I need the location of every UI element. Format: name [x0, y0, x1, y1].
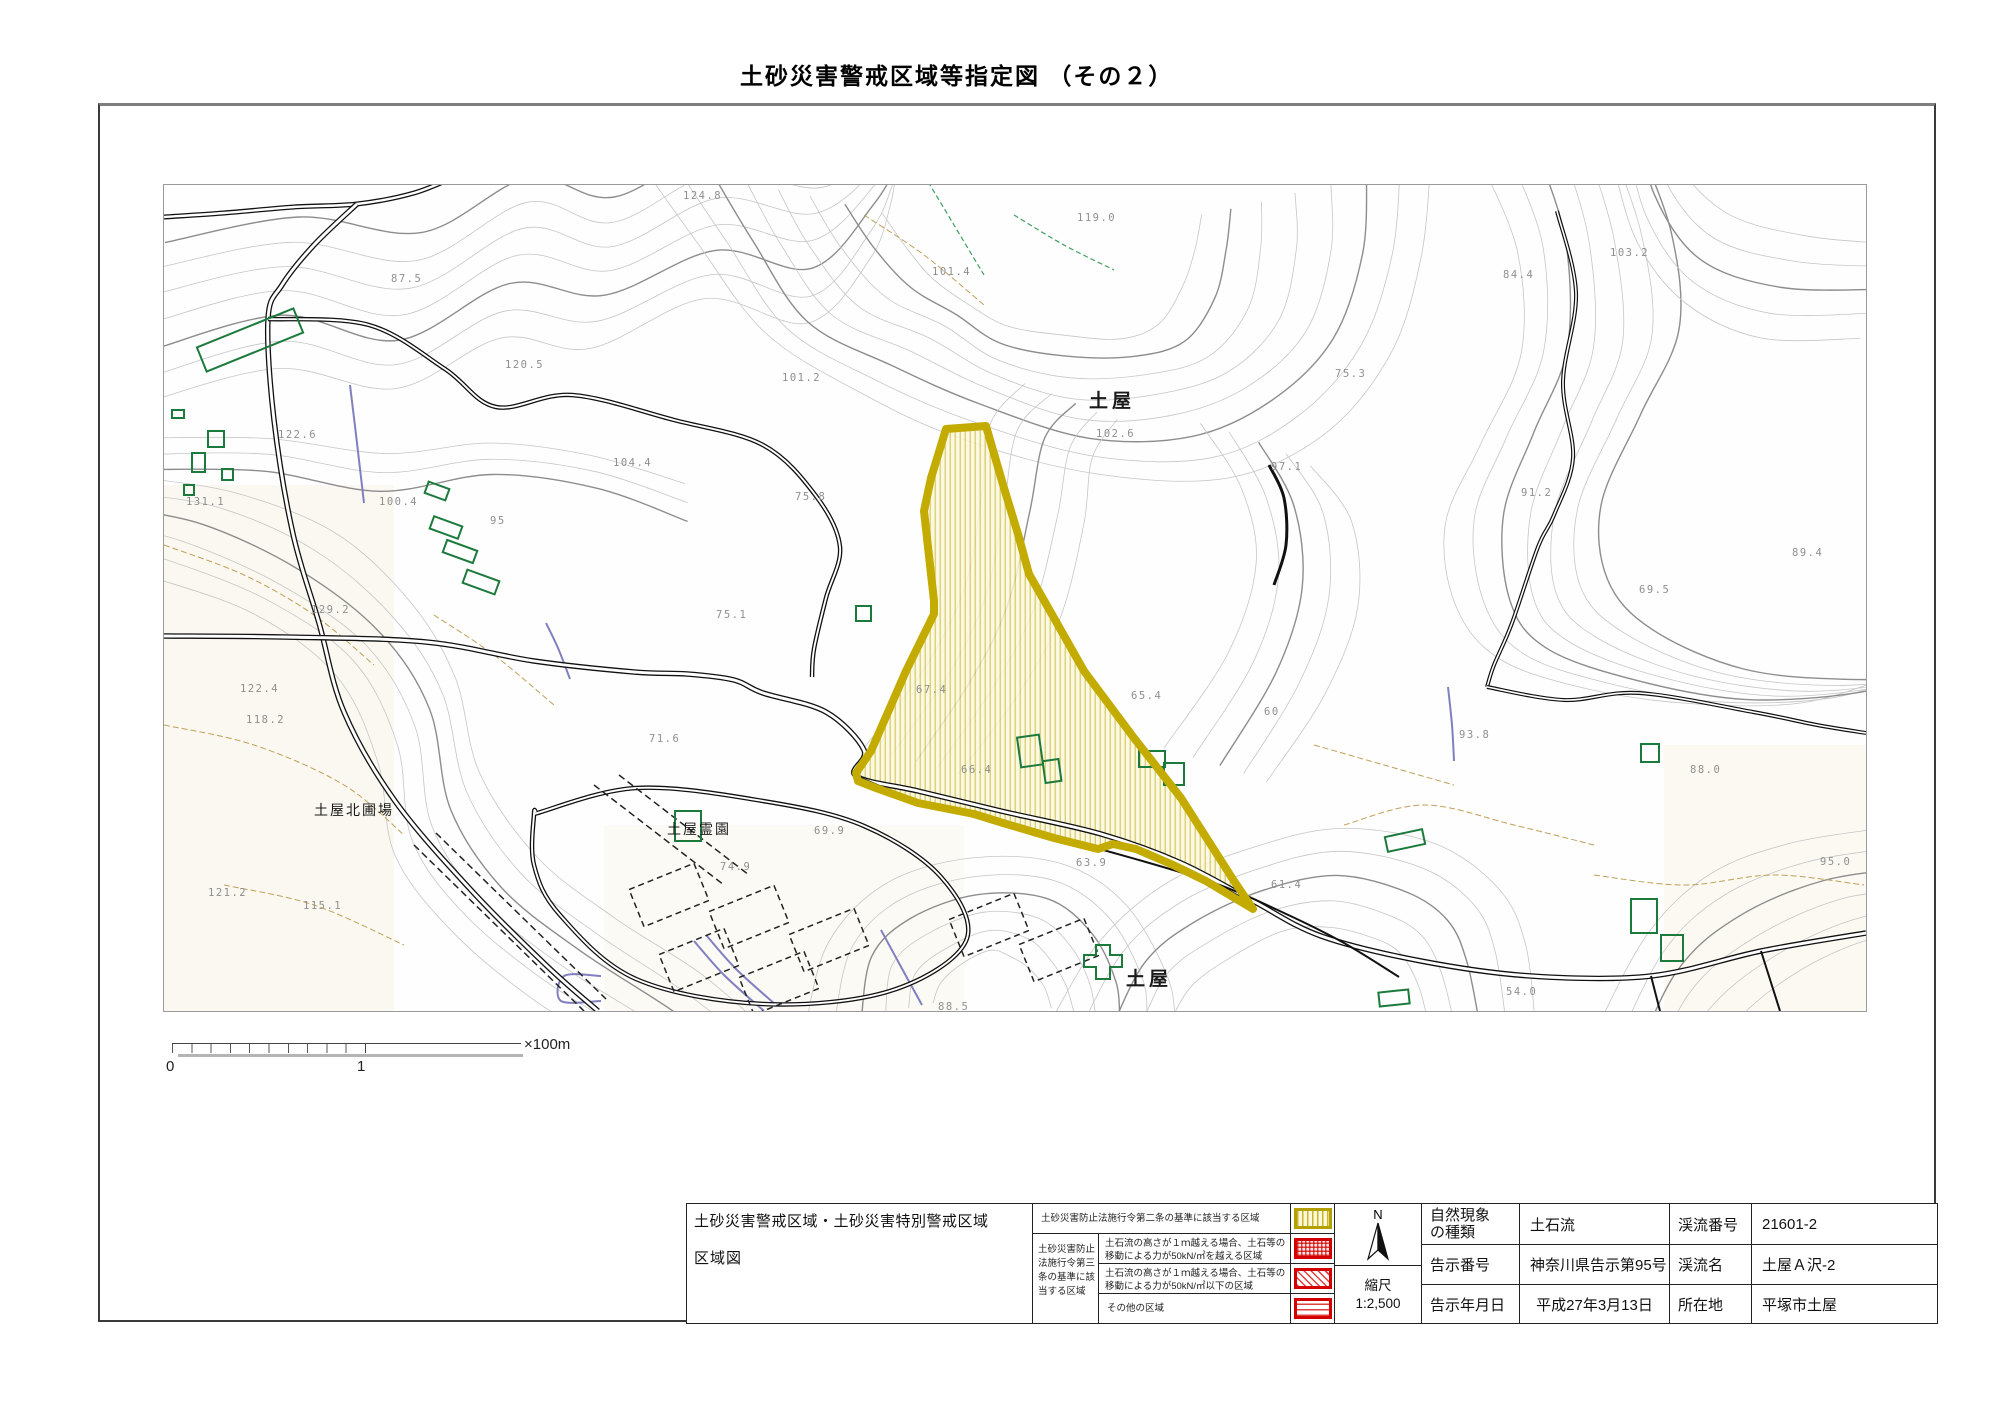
page: 土砂災害警戒区域等指定図 （その２） 124.8119.0101.484.410…: [0, 0, 2000, 1414]
legend-row2-line2: 移動による力が50kN/㎡を越える区域: [1105, 1250, 1290, 1263]
elevation-label: 66.4: [961, 764, 992, 776]
area-label: 土屋: [1089, 390, 1135, 412]
elevation-label: 120.5: [505, 359, 544, 371]
map-title-line1: 土砂災害警戒区域・土砂災害特別警戒区域: [694, 1210, 989, 1231]
legend-group-line: 当する区域: [1038, 1285, 1098, 1299]
legend-row2-line1: 土石流の高さが１ｍ越える場合、土石等の: [1105, 1237, 1290, 1250]
location-label-cell: 所在地: [1669, 1284, 1752, 1324]
scale-cell: 縮尺 1:2,500: [1334, 1265, 1422, 1324]
elevation-label: 75.3: [1335, 368, 1366, 380]
elevation-label: 93.8: [1459, 729, 1490, 741]
elevation-label: 119.0: [1077, 212, 1116, 224]
elevation-label: 69.9: [814, 825, 845, 837]
area-label: 土屋北圃場: [314, 802, 394, 818]
elevation-label: 121.2: [208, 887, 247, 899]
nature-label-cell: 自然現象 の種類: [1421, 1203, 1520, 1245]
notice-no-label-cell: 告示番号: [1421, 1244, 1520, 1285]
north-arrow-cell: N: [1334, 1203, 1422, 1266]
elevation-label: 102.6: [1096, 428, 1135, 440]
legend-row3-text: 土石流の高さが１ｍ越える場合、土石等の 移動による力が50kN/㎡以下の区域: [1098, 1263, 1291, 1294]
elevation-label: 54.0: [1506, 986, 1537, 998]
elevation-label: 129.2: [311, 604, 350, 616]
nature-label-line2: の種類: [1430, 1224, 1490, 1241]
elevation-label: 89.4: [1792, 547, 1823, 559]
scale-bar-ticks: [172, 1043, 366, 1053]
legend-group-line: 法施行令第三: [1038, 1257, 1098, 1271]
scale-bar-zero: 0: [166, 1058, 174, 1075]
map-svg: 124.8119.0101.484.4103.287.5101.275.3120…: [164, 185, 1866, 1011]
info-table: 土砂災害警戒区域・土砂災害特別警戒区域 区域図 土砂災害防止法施行令第二条の基準…: [686, 1203, 1938, 1324]
scale-bar-shadow: [178, 1054, 523, 1057]
elevation-label: 122.4: [240, 683, 279, 695]
north-arrow-icon: N: [1360, 1207, 1396, 1263]
special-zone-swatch-1: [1294, 1238, 1332, 1259]
legend-row3-line1: 土石流の高さが１ｍ越える場合、土石等の: [1105, 1267, 1290, 1280]
elevation-label: 69.5: [1639, 584, 1670, 596]
legend-group-label: 土砂災害防止 法施行令第三 条の基準に該 当する区域: [1032, 1233, 1099, 1324]
scale-bar-unit: ×100m: [524, 1036, 570, 1053]
elevation-label: 60: [1264, 706, 1280, 718]
legend-swatch-special1-cell: [1290, 1233, 1335, 1264]
legend-group-line: 土砂災害防止: [1038, 1243, 1098, 1257]
warning-zone-swatch: [1294, 1208, 1332, 1229]
special-zone-swatch-2: [1294, 1268, 1332, 1289]
scale-label: 縮尺: [1365, 1277, 1392, 1295]
elevation-label: 104.4: [613, 457, 652, 469]
elevation-label: 124.8: [683, 190, 722, 202]
nature-value-cell: 土石流: [1519, 1203, 1670, 1245]
elevation-label: 75.8: [795, 491, 826, 503]
legend-row1-text: 土砂災害防止法施行令第二条の基準に該当する区域: [1032, 1203, 1291, 1234]
legend-swatch-special2-cell: [1290, 1263, 1335, 1294]
elevation-label: 71.6: [649, 733, 680, 745]
elevation-label: 75.1: [716, 609, 747, 621]
elevation-label: 118.2: [246, 714, 285, 726]
elevation-label: 61.4: [1271, 879, 1302, 891]
elevation-label: 67.4: [916, 684, 947, 696]
legend-row3-line2: 移動による力が50kN/㎡以下の区域: [1105, 1280, 1290, 1293]
elevation-label: 103.2: [1610, 247, 1649, 259]
north-label: N: [1373, 1207, 1382, 1222]
other-zone-swatch: [1294, 1298, 1332, 1319]
stream-name-label-cell: 渓流名: [1669, 1244, 1752, 1285]
legend-swatch-other-cell: [1290, 1293, 1335, 1324]
elevation-label: 63.9: [1076, 857, 1107, 869]
elevation-label: 88.0: [1690, 764, 1721, 776]
scale-value: 1:2,500: [1355, 1295, 1400, 1313]
notice-date-label-cell: 告示年月日: [1421, 1284, 1520, 1324]
elevation-label: 88.5: [938, 1001, 969, 1011]
elevation-label: 122.6: [278, 429, 317, 441]
nature-label-line1: 自然現象: [1430, 1207, 1490, 1224]
scale-bar-line: [365, 1043, 521, 1046]
elevation-label: 101.2: [782, 372, 821, 384]
stream-no-label-cell: 渓流番号: [1669, 1203, 1752, 1245]
page-title: 土砂災害警戒区域等指定図 （その２）: [740, 57, 1173, 91]
elevation-label: 115.1: [303, 900, 342, 912]
area-label: 土屋霊園: [667, 821, 731, 837]
elevation-label: 101.4: [932, 266, 971, 278]
map-title-cell: 土砂災害警戒区域・土砂災害特別警戒区域 区域図: [686, 1203, 1033, 1324]
legend-swatch-warning-cell: [1290, 1203, 1335, 1234]
notice-date-value-cell: 平成27年3月13日: [1519, 1284, 1670, 1324]
elevation-label: 74.9: [720, 861, 751, 873]
elevation-label: 97.1: [1271, 461, 1302, 473]
location-value-cell: 平塚市土屋: [1751, 1284, 1938, 1324]
elevation-label: 100.4: [379, 496, 418, 508]
stream-name-value-cell: 土屋Ａ沢-2: [1751, 1244, 1938, 1285]
map-title-line2: 区域図: [694, 1247, 742, 1268]
elevation-label: 95: [490, 515, 506, 527]
notice-no-value-cell: 神奈川県告示第95号: [1519, 1244, 1670, 1285]
elevation-label: 95.0: [1820, 856, 1851, 868]
area-label: 土屋: [1126, 968, 1172, 990]
elevation-label: 131.1: [186, 496, 225, 508]
elevation-label: 65.4: [1131, 690, 1162, 702]
elevation-label: 84.4: [1503, 269, 1534, 281]
elevation-label: 87.5: [391, 273, 422, 285]
legend-row2-text: 土石流の高さが１ｍ越える場合、土石等の 移動による力が50kN/㎡を越える区域: [1098, 1233, 1291, 1264]
stream-no-value-cell: 21601-2: [1751, 1203, 1938, 1245]
map: 124.8119.0101.484.4103.287.5101.275.3120…: [163, 184, 1867, 1012]
scale-bar-one: 1: [357, 1058, 365, 1075]
elevation-label: 91.2: [1521, 487, 1552, 499]
legend-row4-text: その他の区域: [1098, 1293, 1291, 1324]
legend-group-line: 条の基準に該: [1038, 1271, 1098, 1285]
